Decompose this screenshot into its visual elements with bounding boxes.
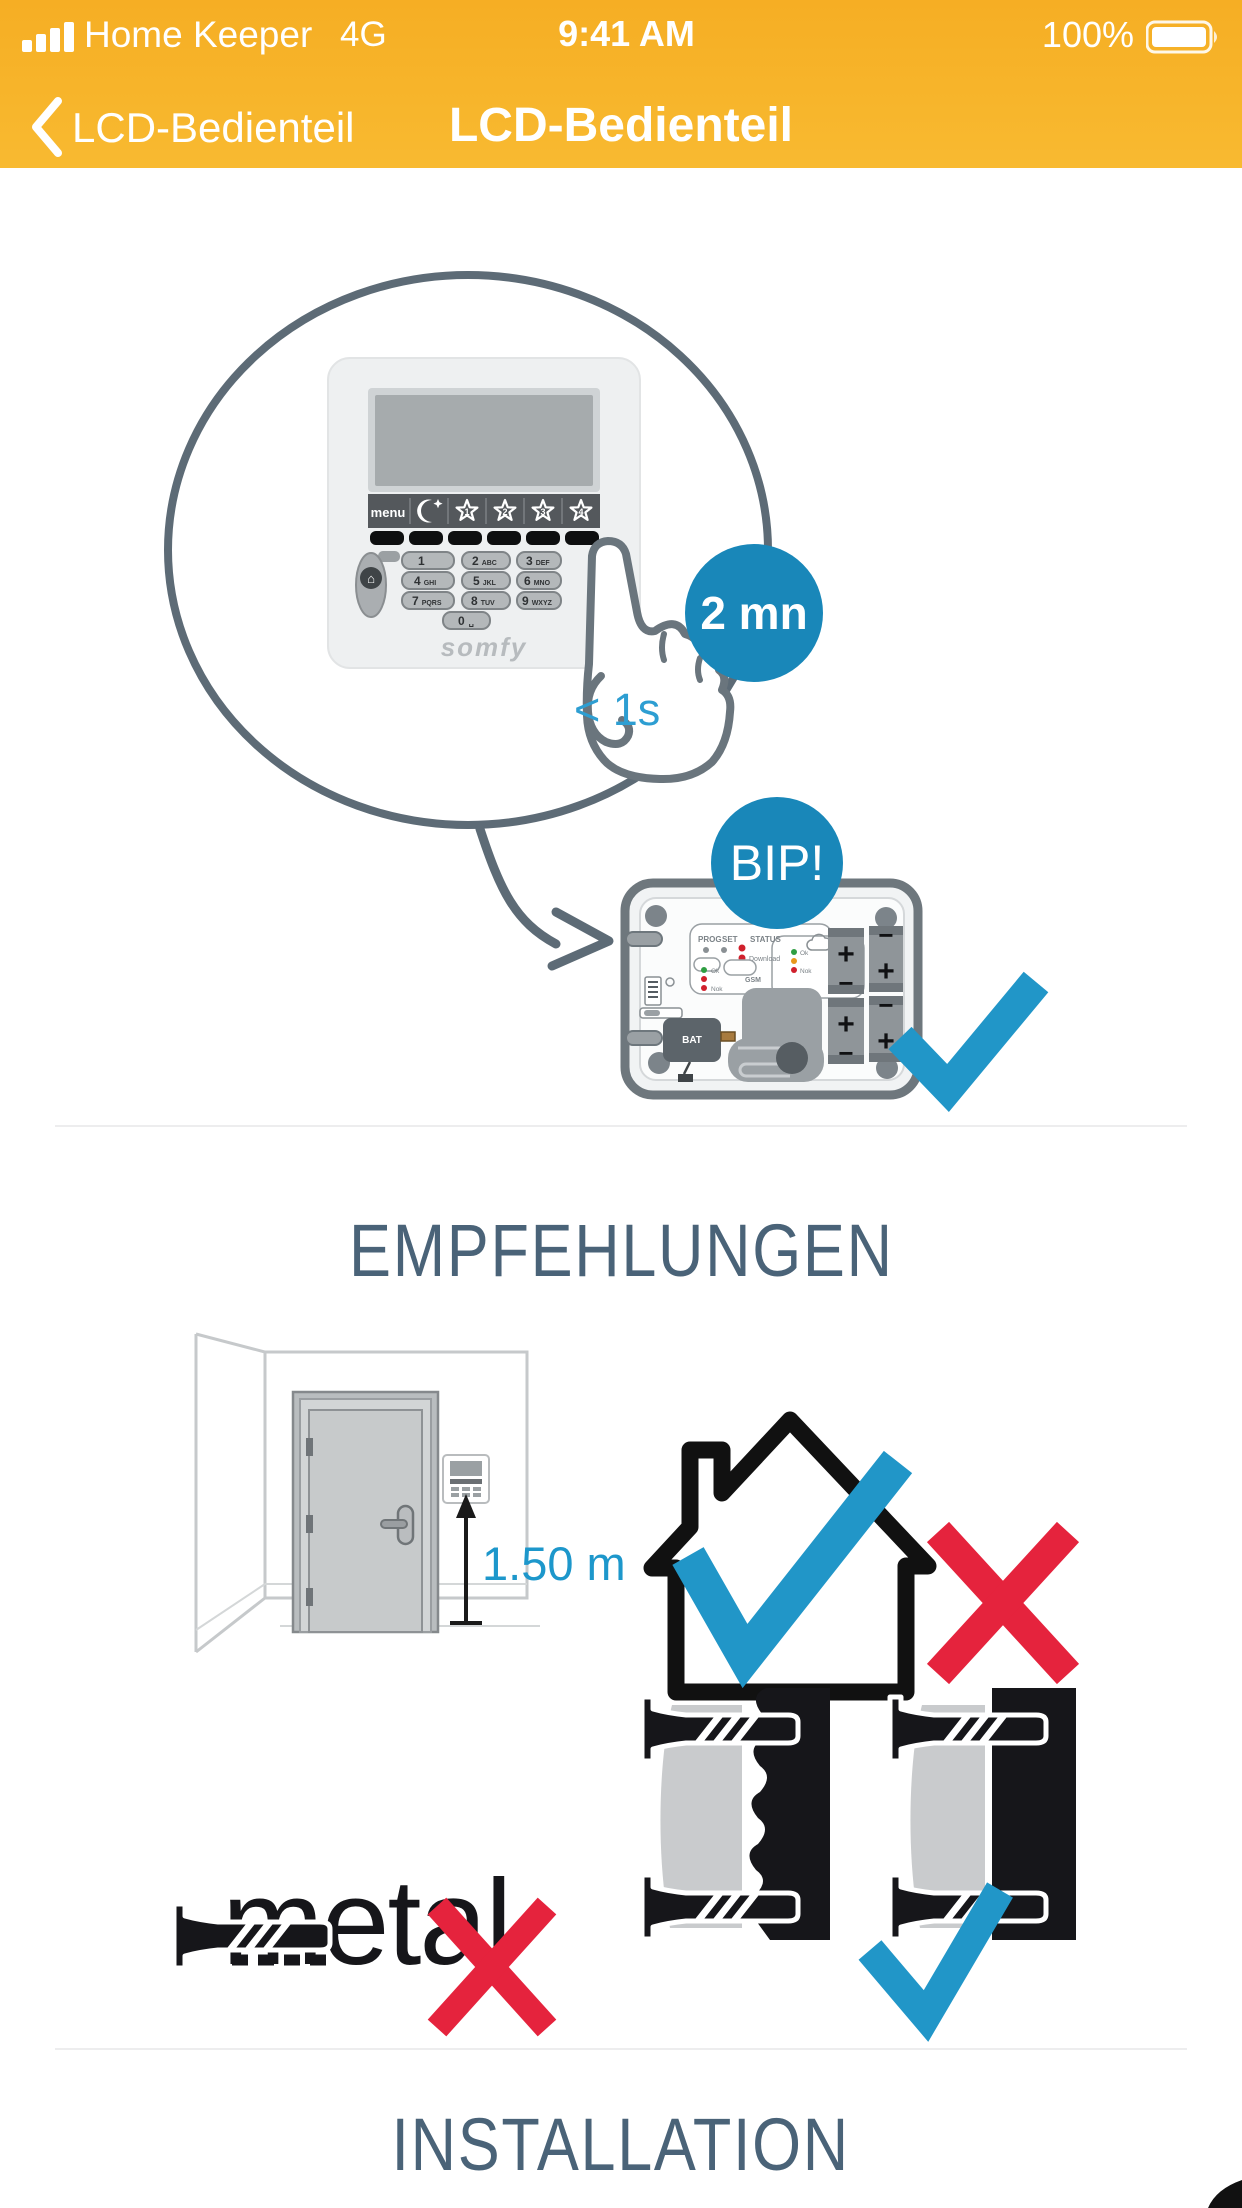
page: Home Keeper 4G 9:41 AM 100% LCD-Bediente…: [0, 0, 1242, 2208]
battery-percent-label: 100%: [1042, 14, 1134, 56]
press-duration-label: < 1s: [574, 684, 660, 736]
status-bar: Home Keeper 4G 9:41 AM 100%: [0, 6, 1242, 54]
page-title: LCD-Bedienteil: [0, 98, 1242, 153]
battery-icon: [1146, 19, 1220, 55]
signal-strength-icon: [22, 20, 88, 54]
section-divider: [55, 2048, 1187, 2050]
carrier-label: Home Keeper: [84, 14, 312, 56]
status-time: 9:41 AM: [558, 13, 695, 55]
installation-heading: INSTALLATION: [0, 2102, 1242, 2187]
network-type-label: 4G: [340, 15, 387, 55]
content-scroll-area[interactable]: [0, 168, 1242, 2208]
beep-badge: BIP!: [711, 797, 843, 929]
wait-time-badge: 2 mn: [685, 544, 823, 682]
app-header: Home Keeper 4G 9:41 AM 100% LCD-Bediente…: [0, 0, 1242, 168]
section-divider: [55, 1125, 1187, 1127]
nav-bar: LCD-Bedienteil LCD-Bedienteil: [0, 88, 1242, 168]
recommendations-heading: EMPFEHLUNGEN: [0, 1208, 1242, 1293]
